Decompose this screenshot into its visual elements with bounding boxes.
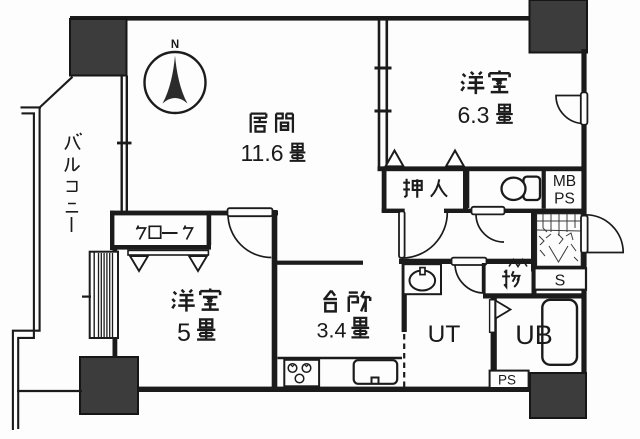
- svg-text:MB: MB: [553, 173, 576, 190]
- svg-text:PS: PS: [554, 191, 575, 208]
- svg-text:5: 5: [177, 319, 191, 347]
- svg-text:11.6: 11.6: [240, 140, 283, 166]
- svg-text:6.3: 6.3: [458, 102, 490, 128]
- svg-text:S: S: [555, 273, 566, 290]
- svg-text:3.4: 3.4: [317, 319, 347, 343]
- svg-text:PS: PS: [498, 373, 516, 388]
- svg-text:UT: UT: [428, 321, 461, 348]
- svg-text:N: N: [171, 39, 179, 51]
- svg-text:UB: UB: [515, 320, 553, 350]
